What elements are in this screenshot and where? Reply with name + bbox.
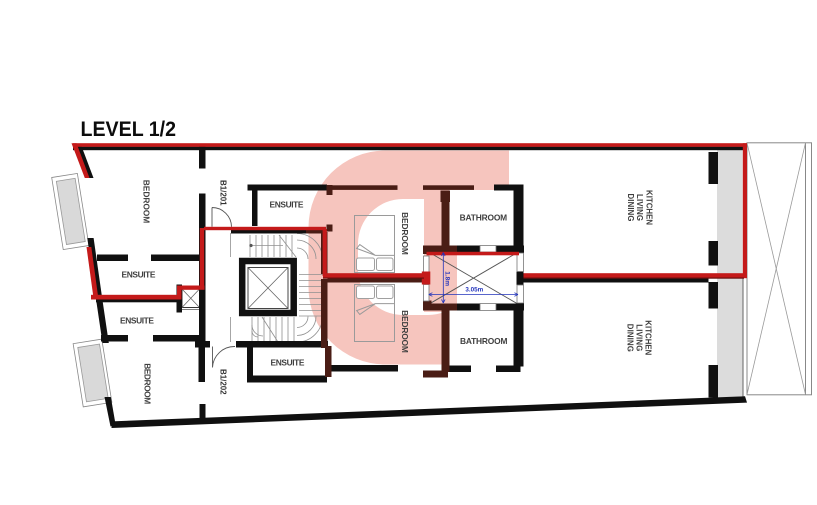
svg-text:BEDROOM: BEDROOM (400, 212, 410, 255)
svg-text:KITCHEN: KITCHEN (644, 320, 653, 355)
svg-text:BEDROOM: BEDROOM (142, 180, 152, 224)
svg-text:3.05m: 3.05m (465, 287, 483, 294)
svg-text:BATHROOM: BATHROOM (460, 336, 508, 346)
svg-text:B1/202: B1/202 (219, 369, 228, 395)
svg-text:LIVING: LIVING (635, 324, 644, 351)
svg-text:ENSUITE: ENSUITE (270, 199, 304, 209)
svg-text:BEDROOM: BEDROOM (142, 363, 152, 404)
svg-text:BEDROOM: BEDROOM (400, 310, 410, 353)
svg-text:KITCHEN: KITCHEN (644, 190, 653, 225)
svg-text:LIVING: LIVING (635, 194, 644, 221)
svg-text:LEVEL 1/2: LEVEL 1/2 (81, 118, 177, 141)
svg-text:DINING: DINING (626, 324, 635, 352)
svg-text:ENSUITE: ENSUITE (120, 315, 154, 325)
svg-text:ENSUITE: ENSUITE (271, 357, 305, 367)
svg-text:DINING: DINING (626, 194, 635, 222)
svg-text:1.8m: 1.8m (444, 271, 451, 286)
svg-text:BATHROOM: BATHROOM (460, 212, 508, 222)
svg-text:B1/201: B1/201 (218, 180, 227, 206)
svg-text:ENSUITE: ENSUITE (122, 269, 156, 279)
